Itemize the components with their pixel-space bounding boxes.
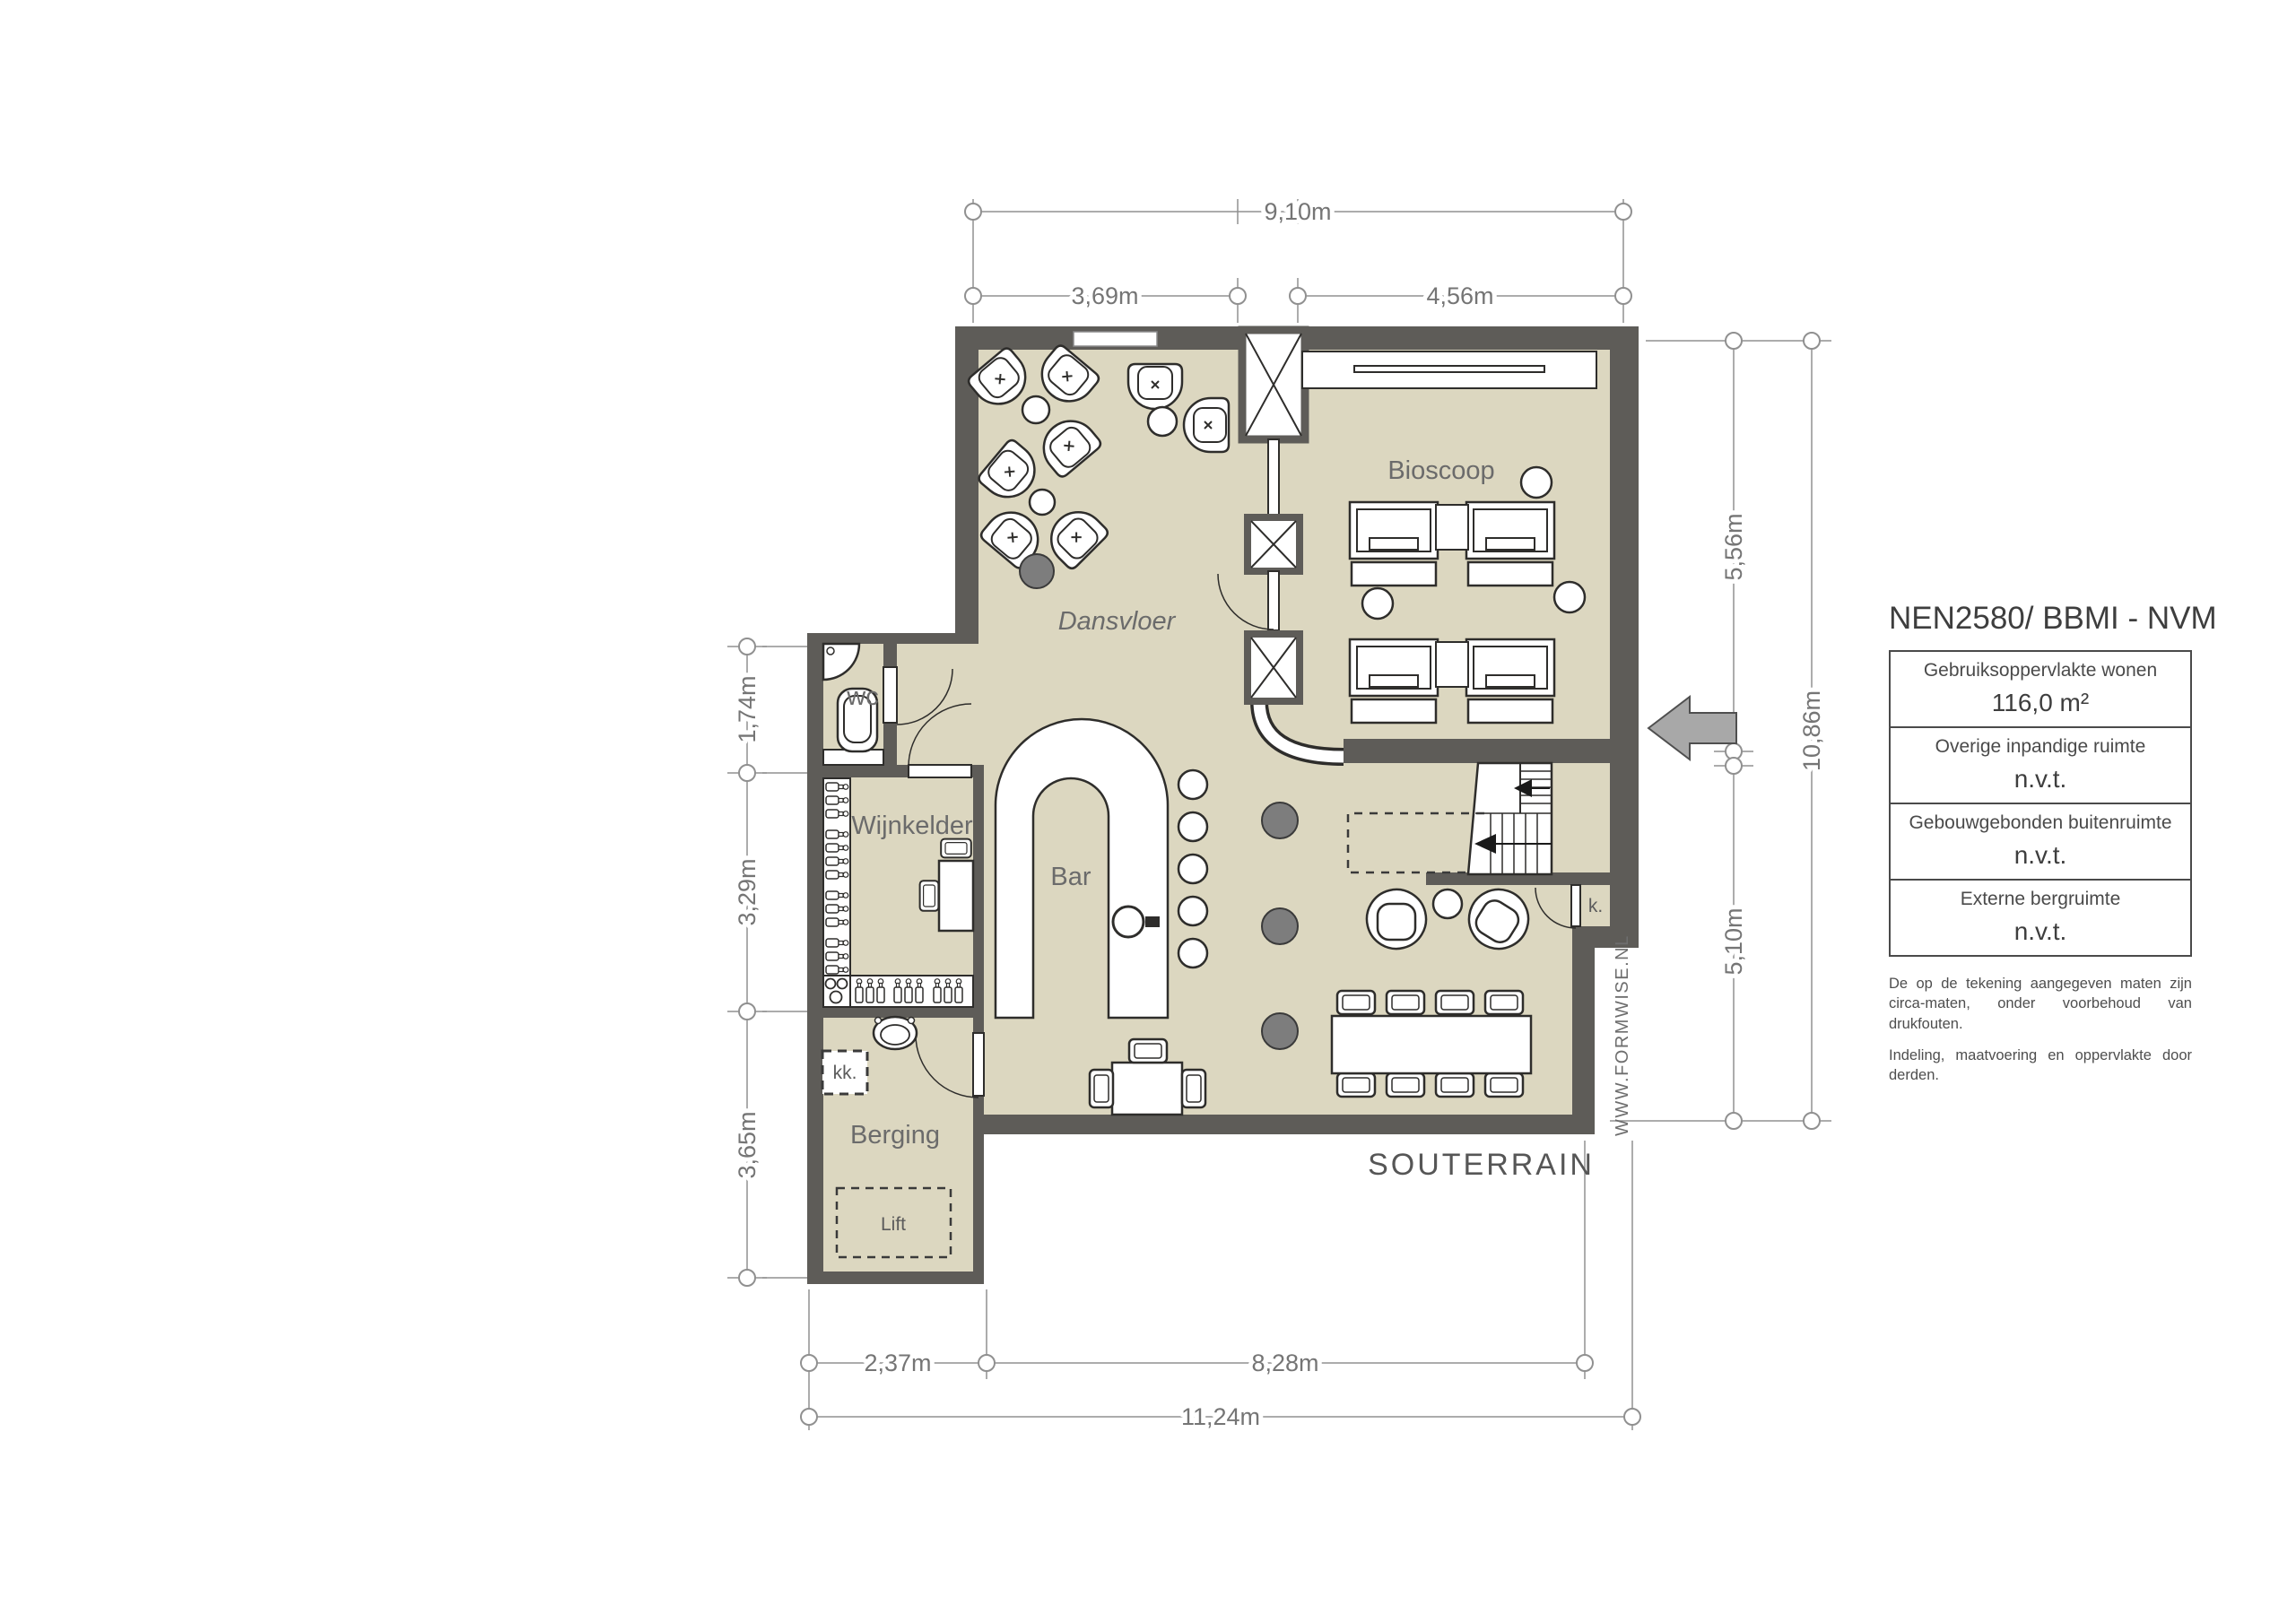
- dim-bottom-left: 2,37m: [864, 1350, 931, 1376]
- dim-top-left: 3,69m: [1071, 282, 1138, 309]
- dim-right-total: 10,86m: [1798, 690, 1825, 771]
- dark-table: [1262, 1013, 1298, 1049]
- legend-row-label: Externe bergruimte: [1894, 889, 2187, 910]
- legend-panel: NEN2580/ BBMI - NVM Gebruiksoppervlakte …: [1889, 601, 2192, 1085]
- door-berging: [973, 1033, 984, 1096]
- legend-row-label: Gebouwgebonden buitenruimte: [1894, 812, 2187, 834]
- legend-row-wonen: Gebruiksoppervlakte wonen 116,0 m²: [1891, 652, 2190, 726]
- legend-row-value: n.v.t.: [1894, 917, 2187, 946]
- legend-row-buitenruimte: Gebouwgebonden buitenruimte n.v.t.: [1891, 803, 2190, 879]
- room-label-lift: Lift: [881, 1214, 906, 1235]
- cinema-screen: [1354, 366, 1544, 372]
- door-partition: [1268, 571, 1279, 630]
- legend-row-value: 116,0 m²: [1894, 689, 2187, 717]
- dining-table: [1332, 1016, 1531, 1073]
- legend-row-label: Overige inpandige ruimte: [1894, 736, 2187, 758]
- room-label-wc: wc: [846, 682, 878, 711]
- room-label-closet: k.: [1588, 896, 1603, 916]
- beer-tap: [1113, 907, 1144, 937]
- dim-left-wijnkelder: 3,29m: [734, 858, 761, 925]
- door-wc: [883, 667, 897, 723]
- legend-table: Gebruiksoppervlakte wonen 116,0 m² Overi…: [1889, 650, 2192, 957]
- legend-row-label: Gebruiksoppervlakte wonen: [1894, 660, 2187, 681]
- room-label-berging: Berging: [850, 1121, 940, 1150]
- room-label-dansvloer: Dansvloer: [1058, 607, 1177, 636]
- room-label-bar: Bar: [1050, 863, 1091, 891]
- dim-left-berging: 3,65m: [734, 1111, 761, 1178]
- wine-table: [939, 861, 973, 931]
- watermark: WWW.FORMWISE.NL: [1613, 934, 1632, 1136]
- dark-table: [1020, 554, 1054, 588]
- dim-bottom-total: 11,24m: [1181, 1403, 1260, 1430]
- dim-right-upper: 5,56m: [1720, 513, 1747, 580]
- wall-niche: [1074, 332, 1157, 346]
- legend-row-value: n.v.t.: [1894, 841, 2187, 870]
- dim-right-lower: 5,10m: [1720, 907, 1747, 975]
- room-label-kitchenette: kk.: [833, 1063, 857, 1083]
- legend-disclaimer-1: De op de tekening aangegeven maten zijn …: [1889, 974, 2192, 1034]
- legend-row-inpandig: Overige inpandige ruimte n.v.t.: [1891, 726, 2190, 803]
- dim-top-right: 4,56m: [1426, 282, 1493, 309]
- door-wijnkelder: [909, 765, 971, 777]
- legend-disclaimer-2: Indeling, maatvoering en oppervlakte doo…: [1889, 1046, 2192, 1086]
- floor-label: SOUTERRAIN: [1368, 1148, 1595, 1182]
- bar-table: [1112, 1063, 1182, 1115]
- dark-table: [1262, 908, 1298, 944]
- legend-row-value: n.v.t.: [1894, 765, 2187, 794]
- room-label-bioscoop: Bioscoop: [1387, 456, 1494, 485]
- legend-title: NEN2580/ BBMI - NVM: [1889, 601, 2192, 637]
- entrance-arrow-icon: [1648, 697, 1736, 759]
- dim-top-total: 9,10m: [1264, 198, 1331, 225]
- dim-left-wc: 1,74m: [734, 675, 761, 742]
- door-closet: [1571, 885, 1580, 926]
- dark-table: [1262, 803, 1298, 838]
- room-label-wijnkelder: Wijnkelder: [851, 811, 973, 840]
- floorplan-page: 9,10m 3,69m 4,56m 1,74m 3,29m 3,65m 5,56…: [0, 0, 2296, 1623]
- legend-row-bergruimte: Externe bergruimte n.v.t.: [1891, 879, 2190, 955]
- dim-bottom-mid: 8,28m: [1251, 1350, 1318, 1376]
